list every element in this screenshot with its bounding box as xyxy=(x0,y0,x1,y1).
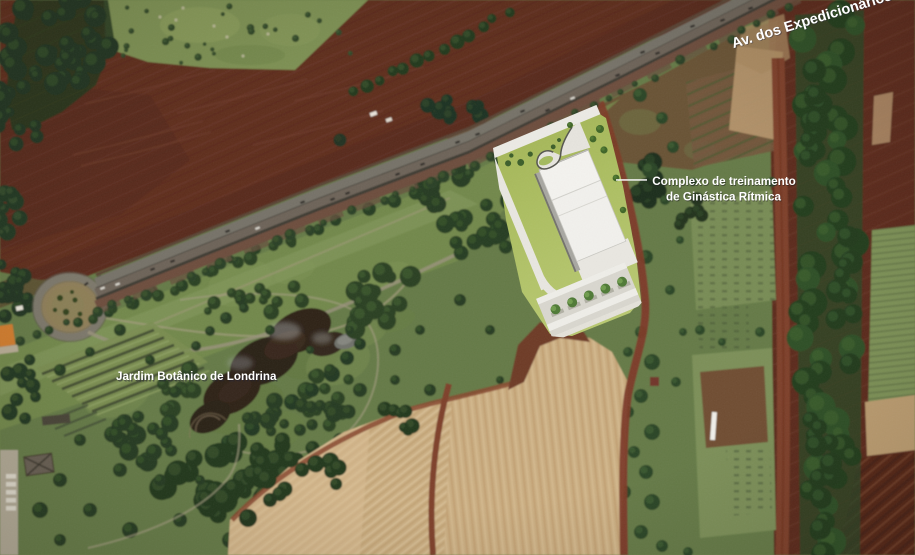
svg-text:de Ginástica Rítmica: de Ginástica Rítmica xyxy=(666,190,781,203)
svg-text:Complexo de treinamento: Complexo de treinamento xyxy=(652,175,796,188)
svg-text:Jardim Botânico de Londrina: Jardim Botânico de Londrina xyxy=(116,370,277,383)
